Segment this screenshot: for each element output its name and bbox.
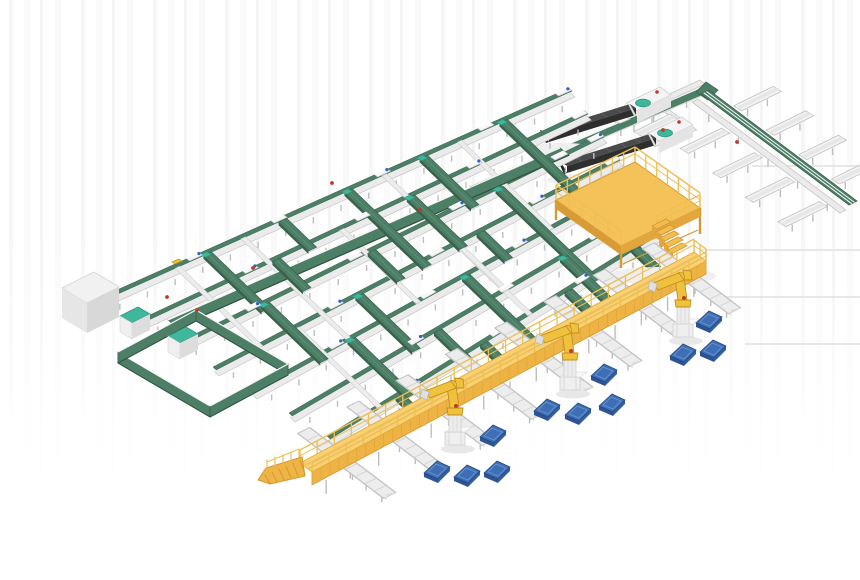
pallet: [599, 394, 625, 416]
render-canvas: [0, 0, 860, 580]
walkway-stairs-ramp: [258, 449, 305, 484]
pallet: [696, 311, 722, 333]
pallet: [484, 461, 510, 483]
pallet: [565, 403, 591, 425]
pallet: [670, 344, 696, 366]
pallet: [700, 340, 726, 362]
pallet: [591, 364, 617, 386]
pallet: [454, 465, 480, 487]
factory-3d-scene: [0, 0, 860, 580]
pallet: [534, 399, 560, 421]
